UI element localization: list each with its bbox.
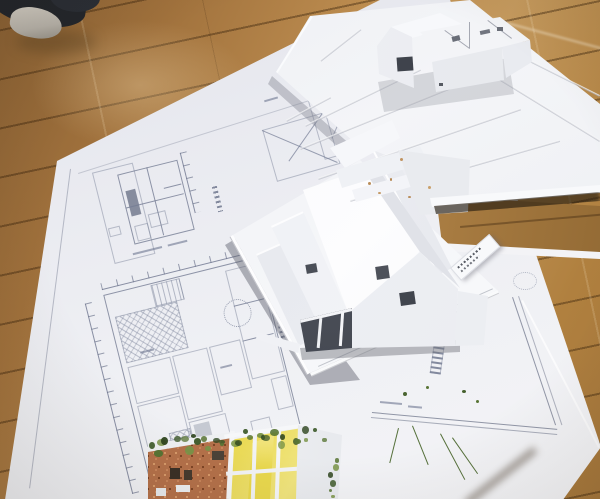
interior-slot <box>497 27 503 31</box>
dimension-text <box>380 401 402 405</box>
cardboard-fleck <box>400 158 403 161</box>
cardboard-fleck <box>390 178 392 181</box>
interior-wall <box>469 22 470 48</box>
foliage-blob <box>313 428 317 432</box>
cardboard-fleck <box>378 192 381 194</box>
floor-plan-small <box>90 138 222 266</box>
vine-blob <box>333 464 339 470</box>
plan-scribble <box>513 272 537 290</box>
sheet-border-right <box>518 296 562 425</box>
sprig-leaf <box>462 390 466 393</box>
foliage-blob <box>174 436 181 442</box>
foliage-blob <box>181 436 189 442</box>
foliage-blob <box>185 446 193 455</box>
foliage-blob <box>154 450 162 456</box>
dimension-text <box>408 405 422 408</box>
foliage-blob <box>235 440 242 446</box>
vine-blob <box>330 480 337 487</box>
foliage-blob <box>304 438 308 441</box>
foliage-blob <box>220 443 224 446</box>
foliage-blob <box>201 436 207 442</box>
foliage-blob <box>247 435 253 440</box>
foliage-blob <box>205 446 212 452</box>
cardboard-fleck <box>428 186 431 189</box>
vine-blob <box>329 489 332 492</box>
foliage-blob <box>270 429 279 437</box>
cardboard-fleck <box>368 182 371 185</box>
foliage-blob <box>322 438 326 443</box>
sprig-leaf <box>476 400 479 403</box>
detail-model <box>140 395 370 499</box>
vine-blob <box>335 458 339 462</box>
vine-blob <box>331 495 335 499</box>
sprig-leaf <box>426 386 429 389</box>
foliage-blob <box>295 439 301 444</box>
foliage-blob <box>280 434 285 440</box>
foliage-blob <box>278 441 285 450</box>
sheet-border-right <box>512 297 556 425</box>
photo-stage <box>0 0 600 499</box>
foliage-blob <box>149 442 155 449</box>
vine-blob <box>328 472 333 477</box>
foliage-cluster <box>140 395 370 499</box>
sheet-border-bottom <box>372 412 557 430</box>
top-house-window <box>397 56 414 71</box>
person-feet <box>0 0 118 66</box>
sprig-leaf <box>403 392 407 396</box>
foliage-blob <box>161 437 168 445</box>
foliage-blob <box>194 438 202 445</box>
facade-mark <box>439 83 443 86</box>
foliage-blob <box>302 426 309 434</box>
gable-window <box>375 265 390 280</box>
cardboard-fleck <box>408 196 411 198</box>
foliage-blob <box>243 429 248 434</box>
gable-window <box>399 291 416 306</box>
foliage-blob <box>262 435 270 442</box>
roof-window <box>305 263 317 274</box>
